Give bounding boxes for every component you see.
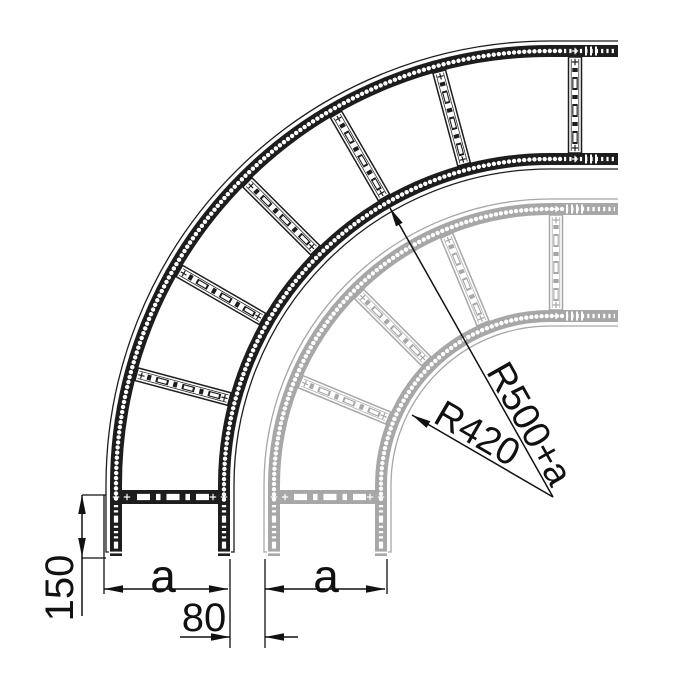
cable-ladder-bend-drawing: 150a80aR500+aR420 [0,0,691,683]
end-rung-bottom [122,491,218,504]
technical-drawing-canvas: 150a80aR500+aR420 [0,0,691,683]
label-dim_a_black: a [150,550,176,602]
end-rung-bottom [280,491,375,504]
end-rung-right [569,57,582,153]
label-dim_150: 150 [38,555,82,622]
label-dim_80: 80 [182,596,227,640]
label-dim_a_gray: a [313,550,339,602]
end-rung-right [550,215,563,310]
